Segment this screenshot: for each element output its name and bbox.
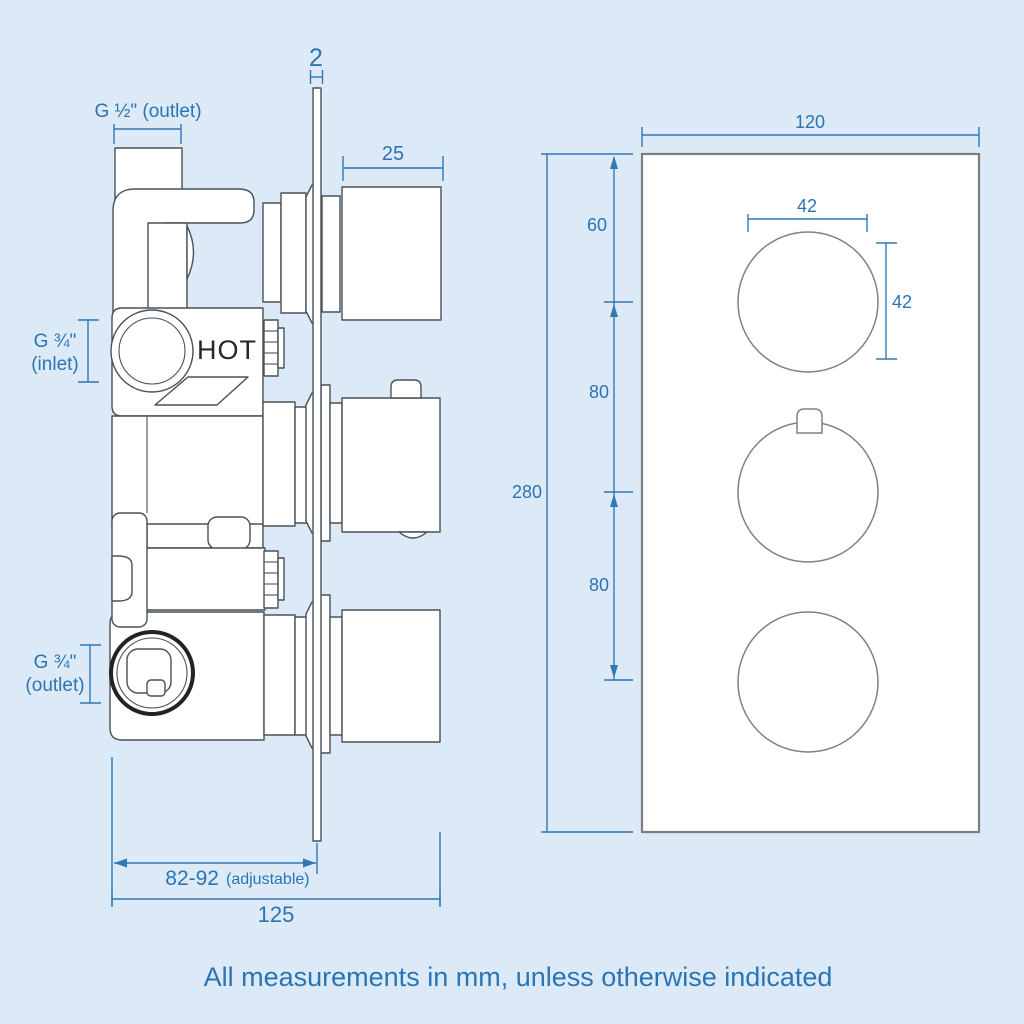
thread-stub-lower [264, 551, 284, 608]
dim-wall-depth-note: (adjustable) [226, 871, 310, 888]
knob-base [330, 403, 342, 523]
cartridge-step [263, 402, 295, 526]
cross-bar-fitting [208, 517, 250, 549]
dim-top-dial-offset: 60 [587, 215, 607, 235]
dim-total-depth: 125 [258, 902, 295, 927]
cartridge-body [295, 617, 307, 735]
mid-body [112, 416, 263, 526]
dim-dial-diameter-w: 42 [797, 196, 817, 216]
outlet-window-step [147, 680, 165, 696]
hot-marking: HOT [197, 335, 257, 365]
dial-bottom [738, 612, 878, 752]
front-view [642, 154, 979, 832]
valve-dimension-diagram: 2 G ½" (outlet) 25 G ¾" (inlet) G ¾" (ou… [0, 0, 1024, 1024]
knob [342, 187, 441, 320]
thread-stub-upper [264, 320, 284, 376]
knob [342, 398, 440, 532]
dim-inlet-label-1: G ¾" [34, 331, 77, 352]
escutcheon [322, 196, 340, 312]
knob [342, 610, 440, 742]
dim-dial-spacing-upper: 80 [589, 382, 609, 402]
lower-body [145, 548, 265, 610]
pipe-block [148, 223, 187, 310]
diagram-svg: 2 G ½" (outlet) 25 G ¾" (inlet) G ¾" (ou… [0, 0, 1024, 1024]
knob-assembly-top [263, 185, 441, 323]
dim-wall-depth: 82-92 [165, 867, 219, 890]
dim-top-outlet-label: G ½" (outlet) [94, 101, 201, 122]
dim-bottom-outlet-label-1: G ¾" [34, 652, 77, 673]
clamp-bracket-notch [112, 556, 132, 601]
knob-base [330, 617, 342, 735]
wall-plate-side [313, 88, 321, 841]
dim-dial-diameter-h: 42 [892, 292, 912, 312]
dim-plate-height: 280 [512, 482, 542, 502]
diverter-button [391, 380, 421, 398]
dial-middle-tab [797, 409, 822, 433]
cartridge-body [281, 193, 306, 313]
dim-dial-spacing-lower: 80 [589, 575, 609, 595]
dim-bottom-outlet-label-2: (outlet) [25, 675, 84, 696]
dim-knob-depth: 25 [382, 143, 404, 165]
hot-inlet-port [111, 310, 193, 392]
dim-plate-thickness: 2 [309, 44, 323, 72]
knob-assembly-middle [263, 380, 440, 541]
dial-middle [738, 422, 878, 562]
measurement-note: All measurements in mm, unless otherwise… [204, 962, 833, 992]
dim-plate-width: 120 [795, 112, 825, 132]
cartridge-step [263, 203, 281, 302]
dial-top [738, 232, 878, 372]
knob-assembly-bottom [264, 595, 440, 753]
cartridge-step [264, 615, 295, 735]
escutcheon [321, 385, 330, 541]
dim-inlet-label-2: (inlet) [31, 354, 79, 375]
